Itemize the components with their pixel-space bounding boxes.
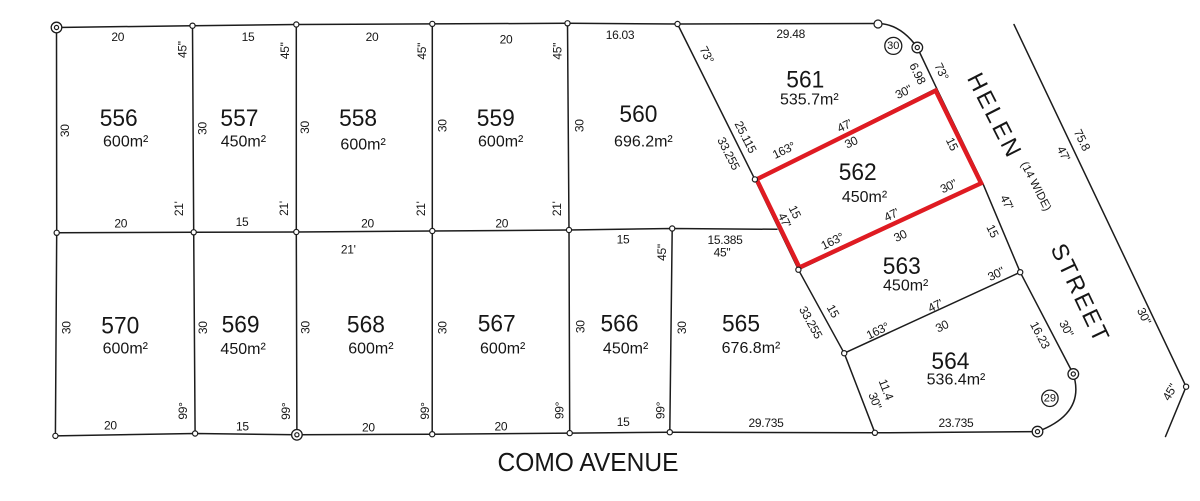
svg-text:15: 15 (242, 30, 255, 44)
svg-text:535.7m²: 535.7m² (780, 92, 839, 109)
svg-text:21': 21' (341, 243, 356, 257)
svg-text:565: 565 (722, 311, 760, 338)
svg-text:99°: 99° (418, 402, 432, 420)
svg-text:COMO AVENUE: COMO AVENUE (498, 447, 679, 477)
svg-text:600m²: 600m² (480, 341, 526, 358)
svg-text:600m²: 600m² (348, 341, 394, 358)
svg-text:30: 30 (887, 40, 899, 52)
svg-text:562: 562 (839, 159, 877, 186)
svg-text:30: 30 (299, 321, 313, 334)
svg-text:20: 20 (104, 418, 117, 432)
svg-text:556: 556 (100, 105, 138, 132)
svg-text:30: 30 (196, 122, 210, 135)
svg-text:45": 45" (415, 43, 429, 60)
svg-text:676.8m²: 676.8m² (722, 340, 781, 357)
svg-text:15: 15 (236, 420, 249, 434)
svg-text:21': 21' (277, 201, 291, 216)
svg-text:30: 30 (436, 321, 450, 334)
svg-text:30: 30 (675, 321, 689, 334)
svg-text:99°: 99° (552, 401, 566, 419)
svg-text:30: 30 (196, 321, 210, 334)
svg-text:21': 21' (172, 201, 186, 216)
svg-text:20: 20 (366, 30, 379, 44)
svg-text:600m²: 600m² (103, 134, 149, 151)
svg-text:20: 20 (114, 216, 127, 230)
svg-text:557: 557 (220, 105, 258, 132)
svg-text:20: 20 (361, 216, 374, 230)
svg-text:696.2m²: 696.2m² (614, 134, 673, 151)
svg-text:450m²: 450m² (883, 278, 929, 295)
svg-text:45": 45" (551, 43, 565, 60)
svg-text:559: 559 (477, 105, 515, 132)
svg-text:30: 30 (573, 119, 587, 132)
svg-text:29.48: 29.48 (776, 27, 805, 41)
svg-text:45": 45" (278, 42, 292, 59)
svg-text:15: 15 (617, 233, 630, 247)
svg-text:450m²: 450m² (603, 341, 649, 358)
svg-text:600m²: 600m² (340, 137, 386, 154)
svg-text:600m²: 600m² (103, 341, 149, 358)
svg-text:20: 20 (495, 216, 508, 230)
svg-text:15: 15 (617, 415, 630, 429)
svg-text:450m²: 450m² (221, 134, 267, 151)
svg-text:570: 570 (101, 313, 139, 340)
svg-text:45": 45" (655, 244, 669, 261)
svg-text:560: 560 (619, 101, 657, 128)
svg-text:568: 568 (347, 312, 385, 339)
svg-text:30: 30 (58, 124, 72, 137)
svg-text:558: 558 (339, 105, 377, 132)
svg-text:21': 21' (414, 201, 428, 216)
svg-text:561: 561 (786, 67, 824, 94)
svg-text:45": 45" (176, 41, 190, 58)
svg-text:20: 20 (495, 420, 508, 434)
svg-text:99°: 99° (279, 402, 293, 420)
svg-text:30: 30 (298, 121, 312, 134)
svg-text:536.4m²: 536.4m² (927, 371, 986, 388)
svg-text:20: 20 (362, 421, 375, 435)
svg-text:20: 20 (500, 33, 513, 47)
svg-text:450m²: 450m² (842, 189, 888, 206)
svg-text:30: 30 (60, 321, 74, 334)
svg-text:563: 563 (883, 253, 921, 280)
svg-text:450m²: 450m² (220, 341, 266, 358)
svg-text:30: 30 (574, 320, 588, 333)
svg-text:29.735: 29.735 (749, 416, 785, 430)
svg-text:20: 20 (111, 30, 124, 44)
svg-text:45": 45" (714, 246, 731, 260)
svg-text:21': 21' (550, 201, 564, 216)
svg-text:567: 567 (478, 311, 516, 338)
svg-text:30: 30 (435, 119, 449, 132)
svg-text:99°: 99° (176, 402, 190, 420)
svg-text:15: 15 (236, 215, 249, 229)
svg-text:99°: 99° (654, 401, 668, 419)
svg-text:29: 29 (1044, 392, 1056, 404)
svg-text:569: 569 (222, 312, 260, 339)
svg-text:16.03: 16.03 (606, 28, 635, 42)
svg-text:566: 566 (601, 311, 639, 338)
svg-text:23.735: 23.735 (938, 416, 974, 430)
svg-text:600m²: 600m² (478, 134, 524, 151)
